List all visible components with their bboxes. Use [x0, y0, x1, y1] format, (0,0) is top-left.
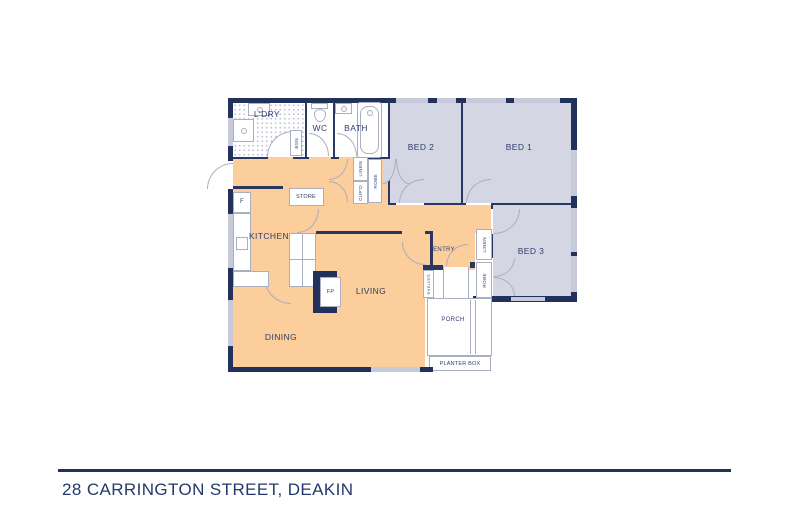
pantry-divider [302, 234, 303, 286]
fridge-label: F [240, 199, 244, 205]
kitchen-bench-south [233, 271, 269, 287]
room-label-bed2: BED 2 [408, 142, 435, 152]
door-arc-side-entrance [207, 163, 233, 189]
wall-mullion [506, 98, 514, 103]
fireplace: FP [320, 277, 341, 307]
wall-bedrooms-south [388, 203, 396, 205]
room-label-living: LIVING [356, 286, 386, 296]
window-bed3-south [511, 297, 545, 301]
room-label-wc: WC [313, 123, 328, 133]
footer-divider [58, 469, 731, 472]
window-bed3-east-1 [571, 208, 577, 252]
wall-utility-south [233, 157, 268, 159]
wall-entry-front [470, 262, 475, 268]
bathtub-drain [367, 110, 373, 116]
property-address: 28 CARRINGTON STREET, DEAKIN [62, 480, 353, 500]
window-dining-west [228, 300, 233, 346]
wall-bedrooms-south [491, 203, 571, 205]
window-bed1-east [571, 150, 577, 196]
room-bed2-floor [390, 103, 461, 203]
robe-bed2-label: ROBE [373, 174, 378, 189]
wall-living-north [316, 231, 402, 234]
fireplace-label: FP [327, 289, 334, 295]
room-label-bed3: BED 3 [518, 246, 545, 256]
cupboard-hall: CUP'D [353, 181, 368, 204]
cupd-label: CUP'D [358, 185, 363, 201]
pantry-divider [290, 259, 315, 260]
window-dining-south [371, 367, 420, 372]
linen-hall-label: LINEN [358, 161, 363, 177]
robe-bed3: ROBE [476, 262, 492, 298]
kitchen-sink [236, 237, 248, 250]
robe-bed2: ROBE [368, 159, 382, 203]
porch-vestibule [443, 267, 469, 300]
window-bed2 [396, 98, 456, 103]
linen-bed3-label: LINEN [482, 237, 487, 253]
room-label-planter-box: PLANTER BOX [440, 361, 481, 367]
window-bed3-east-2 [571, 256, 577, 292]
floorplan-canvas: FP BSN LINEN CUP'D ROBE LINEN ROBE SHELV… [0, 0, 790, 527]
wall-kitchen-north [233, 186, 283, 189]
basin-drain [341, 106, 347, 112]
wall-bedrooms-south [424, 203, 466, 205]
room-label-porch: PORCH [441, 317, 464, 323]
trough-drain [241, 128, 247, 134]
shelves-label: SHELVES [426, 274, 431, 294]
room-label-bed1: BED 1 [506, 142, 533, 152]
wall-porch-corner [427, 367, 433, 372]
room-label-kitchen: KITCHEN [249, 231, 289, 241]
porch-post [470, 300, 471, 354]
shelves: SHELVES [423, 270, 434, 298]
room-label-entry: ENTRY [433, 247, 455, 253]
wall-bed3-west [491, 203, 493, 209]
porch [427, 298, 492, 356]
wall-laundry-wc [305, 101, 307, 157]
basin-cupboard: BSN [290, 130, 302, 156]
linen-cupboard-bed3: LINEN [476, 229, 492, 260]
room-label-bath: BATH [344, 123, 368, 133]
room-label-laundry: L'DRY [254, 109, 280, 119]
wall-bed2-west [388, 101, 390, 203]
room-label-dining: DINING [265, 332, 297, 342]
linen-cupboard-hall: LINEN [353, 157, 368, 181]
porch-post [475, 300, 476, 354]
robe-bed3-label: ROBE [482, 273, 487, 288]
room-label-store: STORE [296, 194, 316, 200]
wall-bed2-bed1 [461, 101, 463, 203]
basin-cupboard-label: BSN [294, 138, 299, 149]
wall-south-end [420, 367, 427, 372]
wall-south-dining [228, 367, 371, 372]
wall-utility-south [293, 157, 309, 159]
wall-mullion [428, 98, 437, 103]
